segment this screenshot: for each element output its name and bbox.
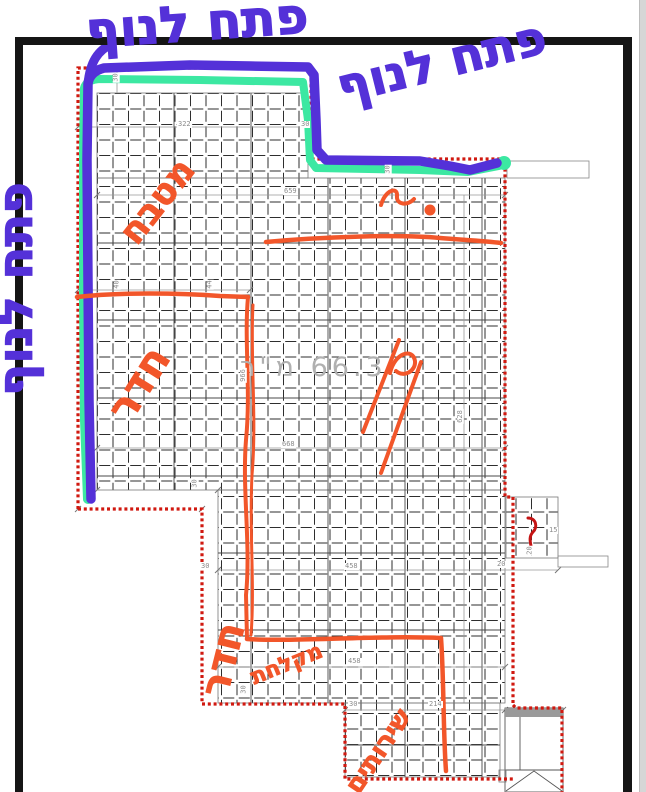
drawing-frame-top [15, 37, 632, 45]
staircase [499, 708, 563, 792]
orange-dot-mark [425, 205, 436, 216]
area-label: 66.3 מ"ר [240, 352, 387, 383]
floor-plan-drawing [0, 0, 646, 792]
drawing-frame-right [623, 37, 632, 792]
drawing-frame-left [15, 37, 23, 792]
scanned-plan-page: 3032230659304044966628668303045845830302… [0, 0, 646, 792]
tile-grid [97, 93, 558, 777]
